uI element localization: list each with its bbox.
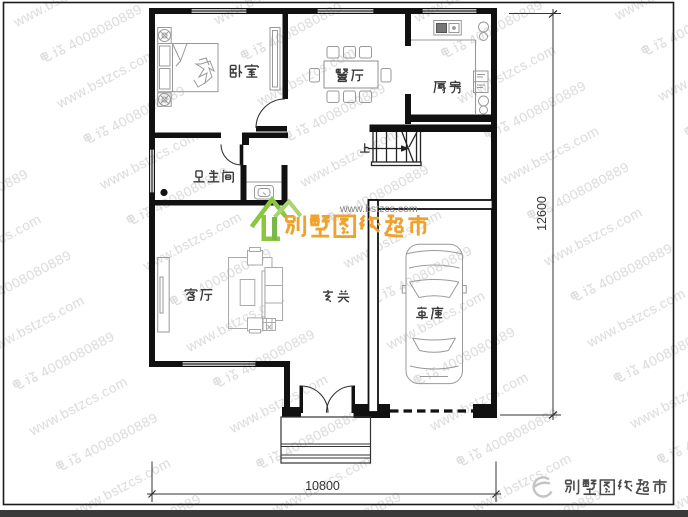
svg-text:12600: 12600 <box>535 196 549 231</box>
svg-text:10800: 10800 <box>305 479 340 493</box>
svg-text:www.bstzcs.com: www.bstzcs.com <box>339 203 418 215</box>
